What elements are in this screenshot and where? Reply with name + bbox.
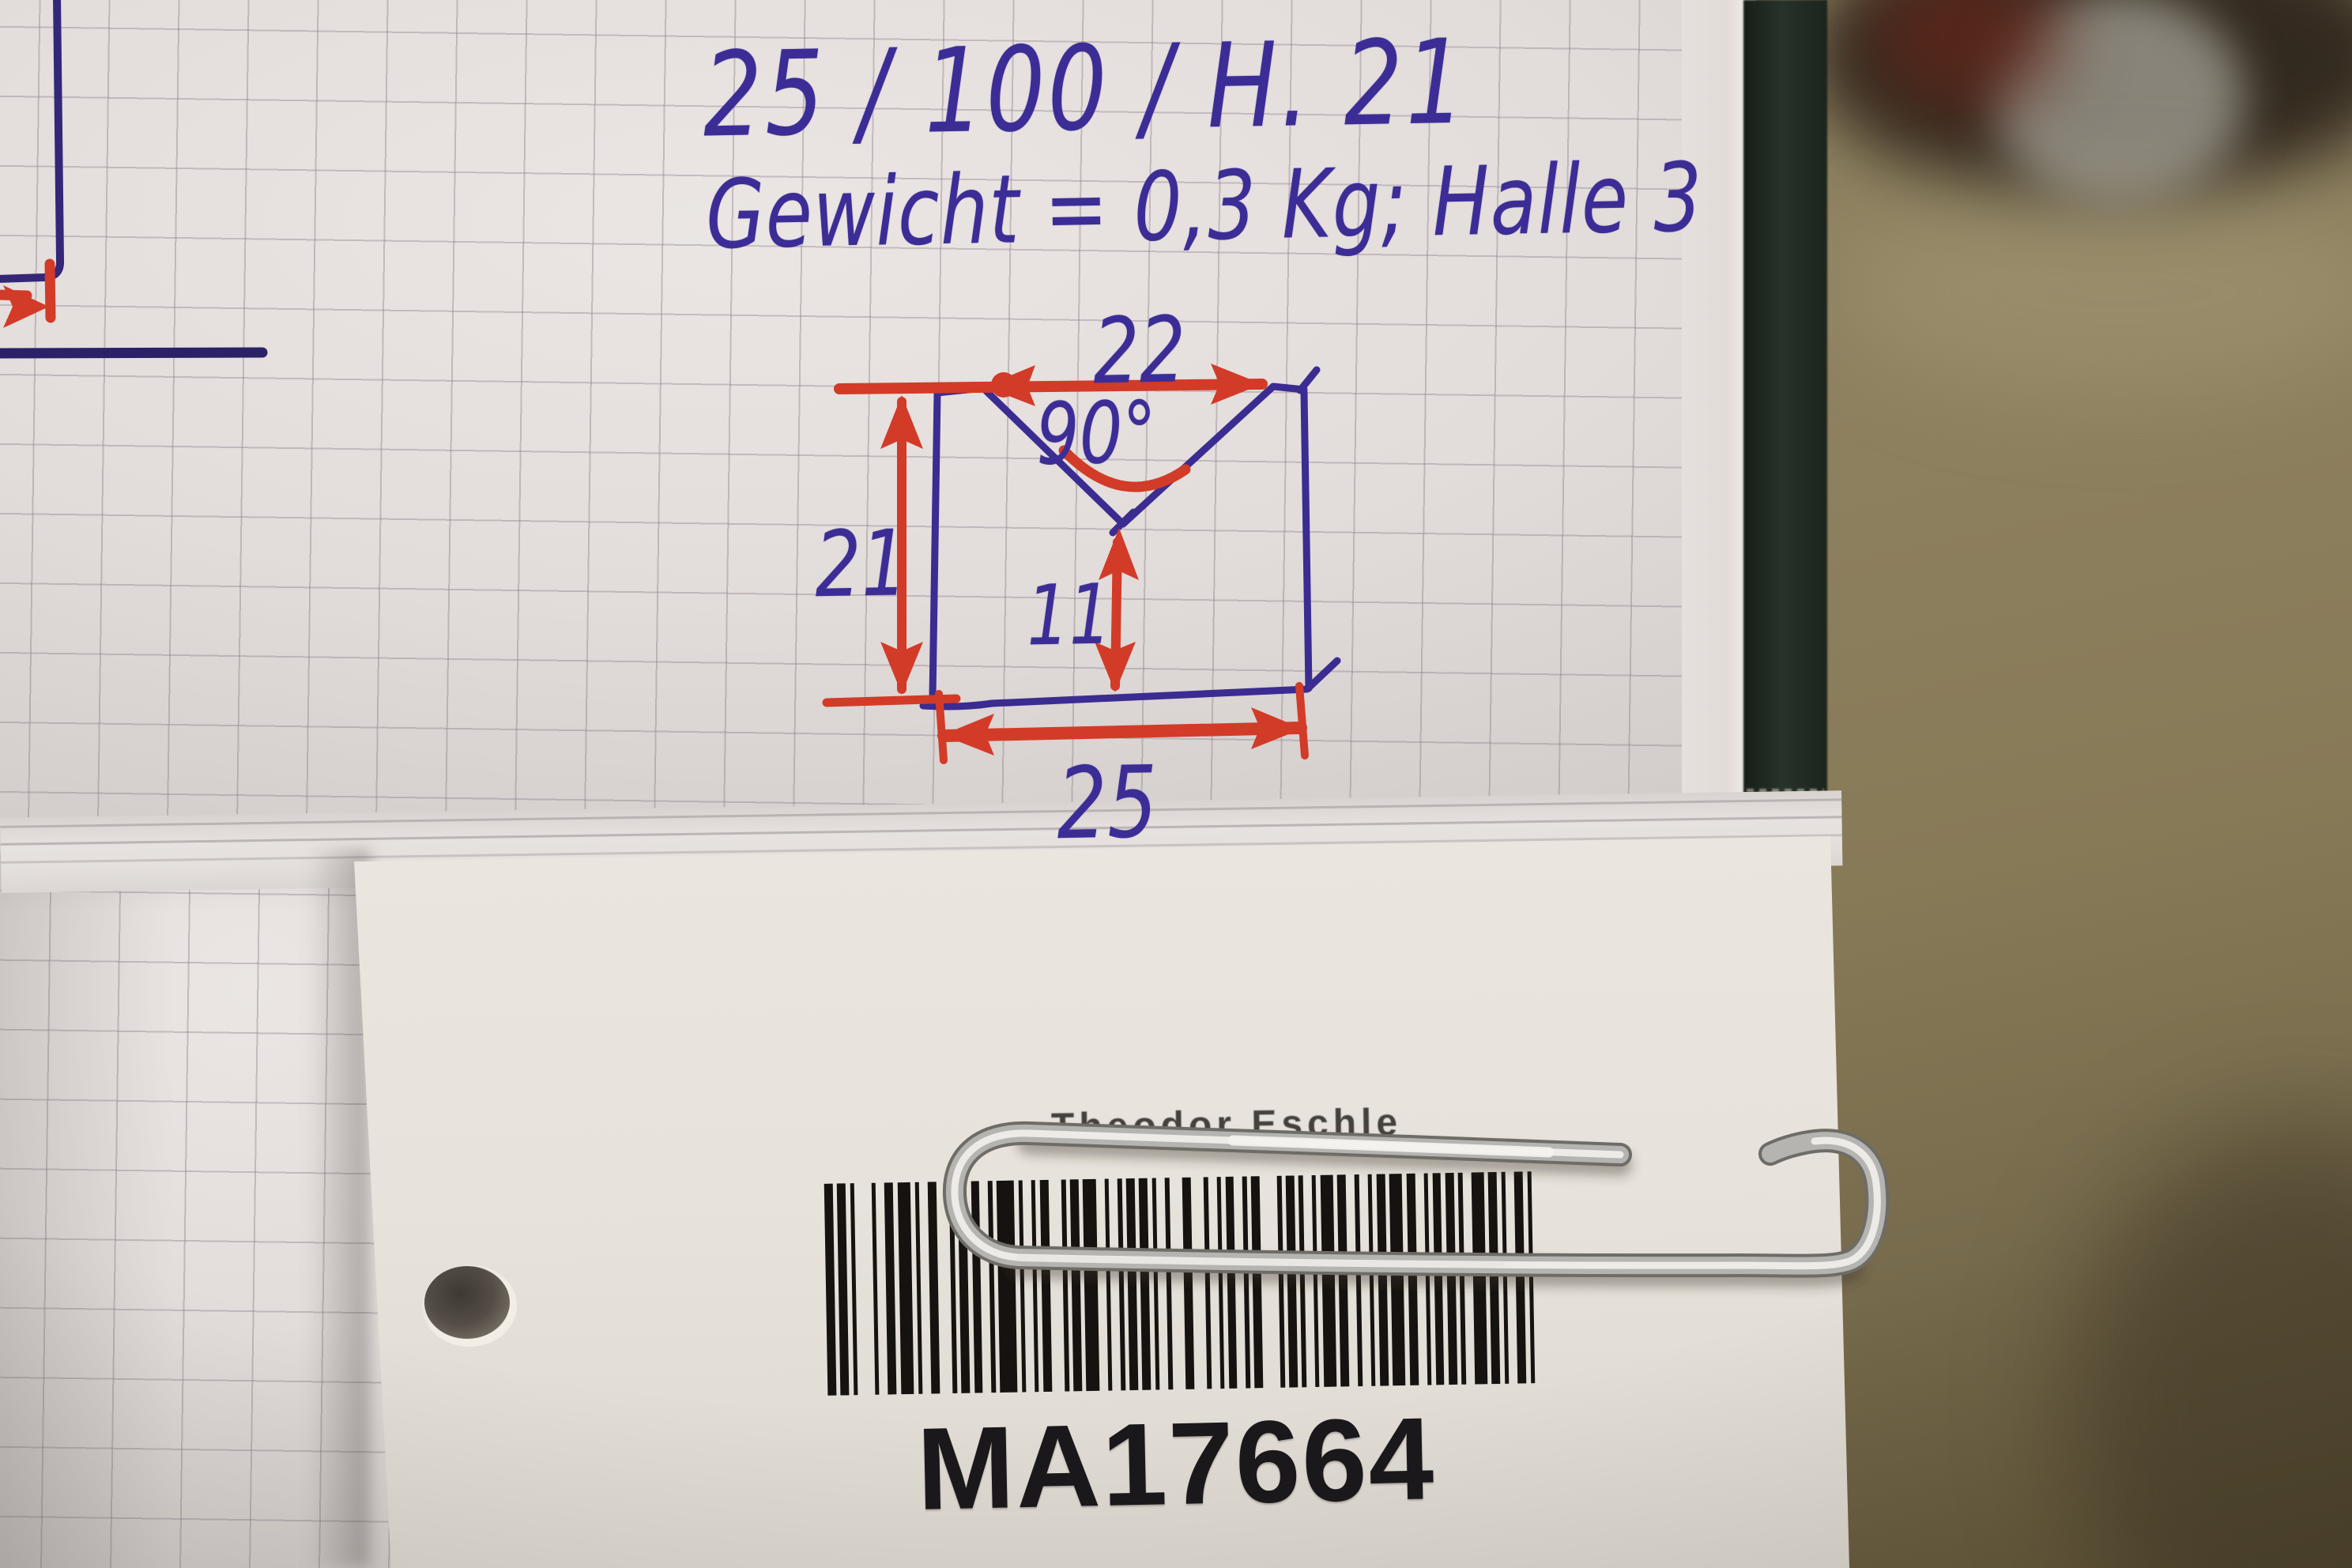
photo-of-worksheet-and-label: 25 / 100 / H. 21 Gewicht = 0,3 Kg; Halle…	[0, 0, 2352, 1568]
photo-vignette	[0, 0, 2352, 1568]
